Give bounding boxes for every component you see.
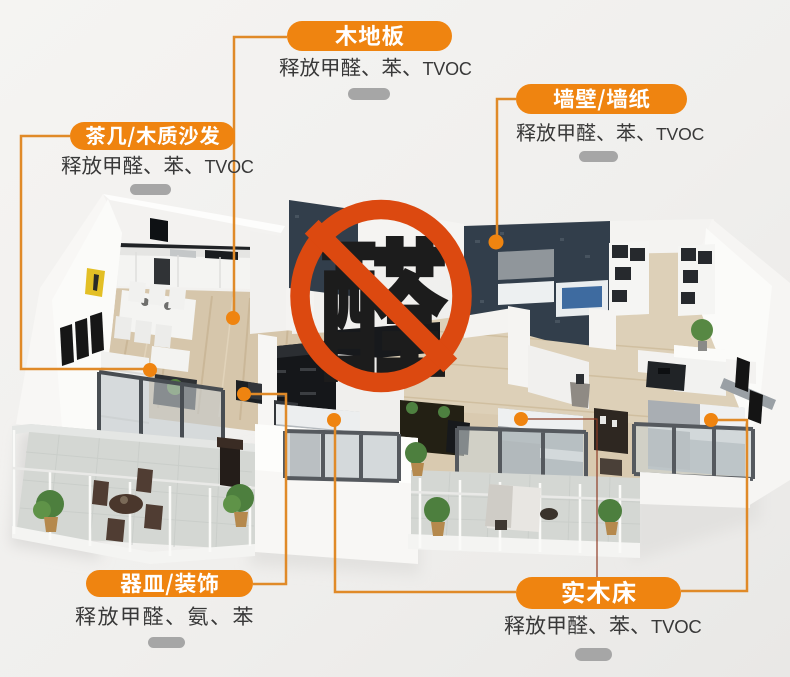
- svg-text:TVOC: TVOC: [656, 124, 705, 144]
- svg-text:TVOC: TVOC: [423, 59, 472, 79]
- svg-text:TVOC: TVOC: [651, 616, 702, 637]
- svg-text:TVOC: TVOC: [205, 157, 254, 177]
